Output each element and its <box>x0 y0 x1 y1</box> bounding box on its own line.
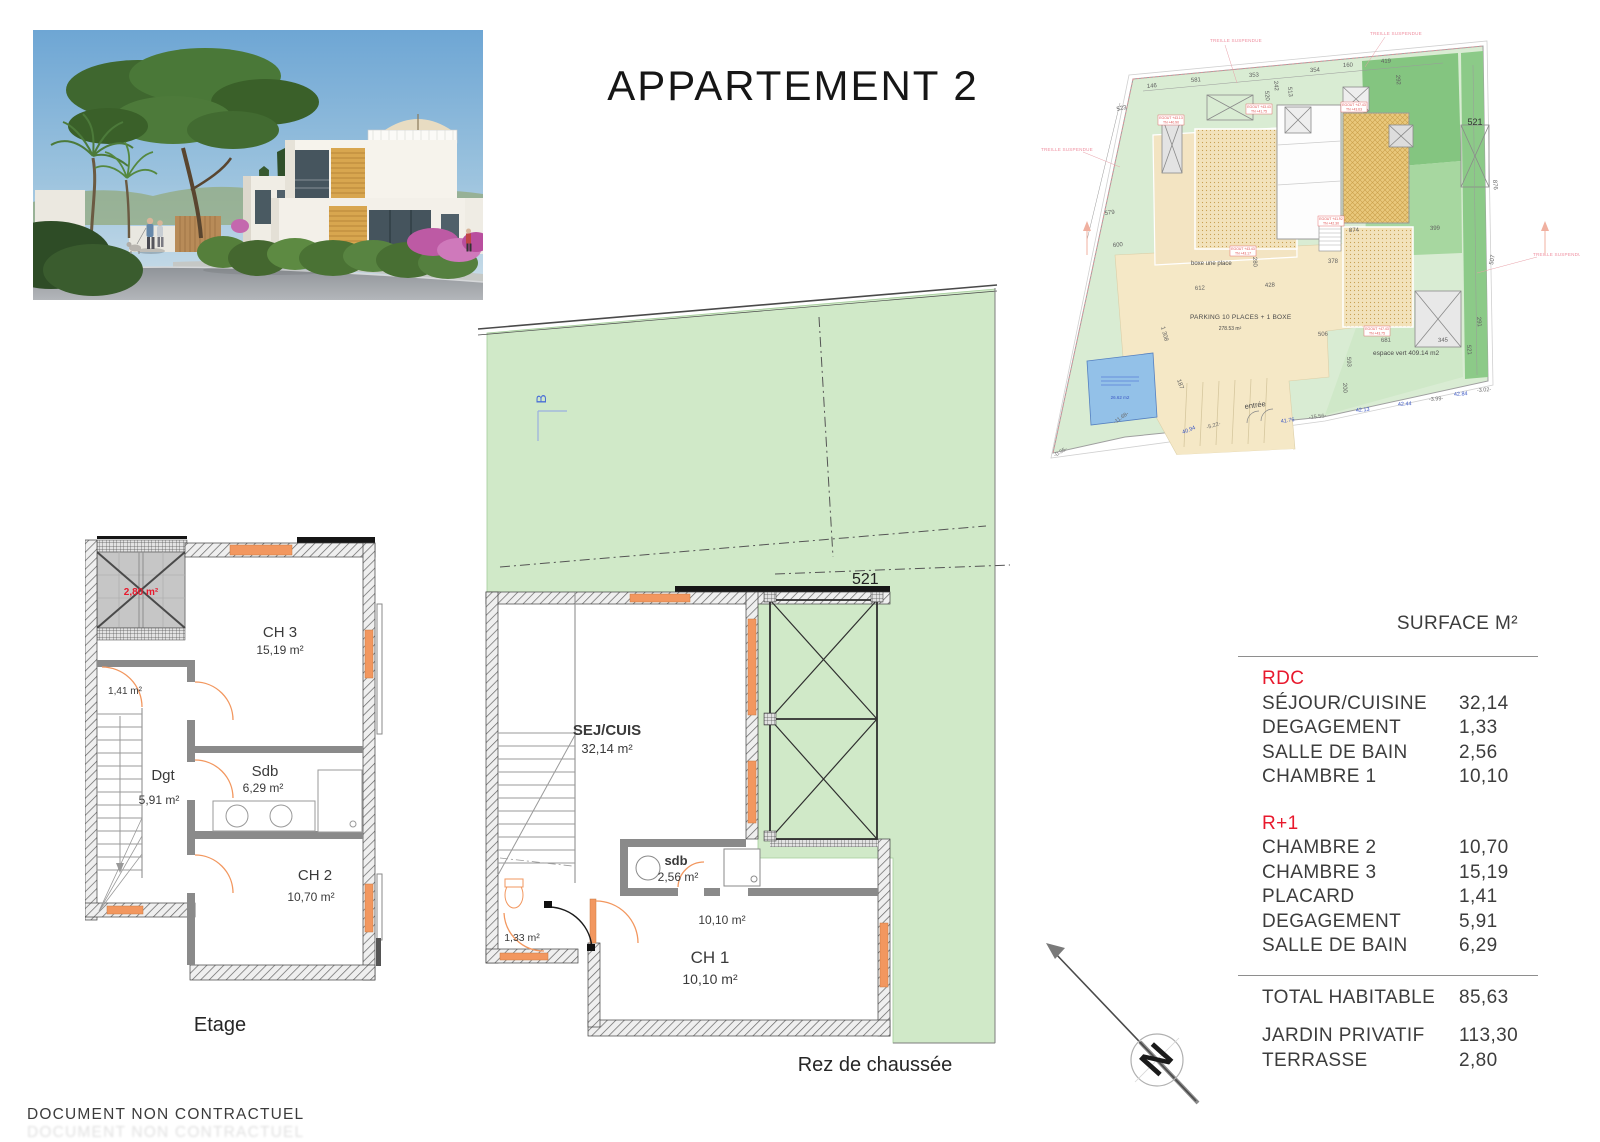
dim-label: 353 <box>1249 72 1260 79</box>
egout-note: TN +43.63 <box>1346 108 1362 112</box>
room-name: CH 1 <box>691 948 730 967</box>
egout-note: TN +40.90 <box>1163 121 1179 125</box>
road-measure: -15.56- <box>1309 413 1327 421</box>
row-label: CHAMBRE 2 <box>1262 837 1376 858</box>
treille-label: TREILLE SUSPENDUE <box>1370 31 1422 36</box>
dim-label: 200 <box>1341 383 1348 394</box>
bathroom-fixtures <box>505 849 760 908</box>
espace-vert-label: espace vert 409.14 m2 <box>1373 350 1440 357</box>
table-row: CHAMBRE 1 10,10 <box>1262 765 1538 790</box>
room-area: 5,91 m² <box>139 793 180 807</box>
row-value: 5,91 <box>1459 910 1498 935</box>
row-value: 1,33 <box>1459 716 1498 741</box>
table-row: TERRASSE 2,80 <box>1262 1049 1538 1074</box>
treille-label: TREILLE SUSPENDUE <box>1533 252 1580 257</box>
parking-label: PARKING 10 PLACES + 1 BOXE <box>1190 314 1292 321</box>
room-area: 2,56 m² <box>658 870 699 884</box>
dim-label: 378 <box>1328 259 1339 265</box>
room-area: 1,33 m² <box>504 932 540 944</box>
dim-label: 291 <box>1475 317 1482 328</box>
room-area: 6,29 m² <box>243 781 284 795</box>
egout-note: EGOUT +43.13 <box>1159 116 1183 120</box>
dim-label: 600 <box>1113 242 1124 249</box>
upper-shutter-rails <box>376 604 382 966</box>
compass-arrowhead <box>1046 943 1065 959</box>
dim-label: 581 <box>1191 77 1202 84</box>
egout-note: TN +43.75 <box>1369 332 1385 336</box>
dim-label: 428 <box>1265 282 1276 289</box>
row-value: 15,19 <box>1459 861 1509 886</box>
row-value: 32,14 <box>1459 692 1509 717</box>
upper-staircase <box>97 708 142 911</box>
table-row-total: TOTAL HABITABLE 85,63 <box>1262 986 1538 1011</box>
room-area: 32,14 m² <box>581 741 633 756</box>
dim-label: 874 <box>1349 228 1360 234</box>
row-label: TOTAL HABITABLE <box>1262 987 1435 1008</box>
row-label: PLACARD <box>1262 886 1355 907</box>
terrace-area-label: 2,80 m² <box>124 587 159 598</box>
egout-note: EGOUT +47.43 <box>1342 103 1366 107</box>
table-row: SALLE DE BAIN 6,29 <box>1262 934 1538 959</box>
row-value: 2,56 <box>1459 741 1498 766</box>
brochure-page: APPARTEMENT 2 <box>0 0 1600 1142</box>
dim-label: 292 <box>1394 75 1401 86</box>
dim-label: 520 <box>1263 91 1270 102</box>
dim-label: 521 <box>1465 345 1472 356</box>
dim-label: 280 <box>1251 257 1258 268</box>
dim-label: 146 <box>1147 83 1158 90</box>
dim-label: 507 <box>1489 254 1497 266</box>
parking-area-label: 278.53 m² <box>1219 326 1242 332</box>
egout-note: EGOUT +41.92 <box>1319 217 1343 221</box>
road-measure: -3.02- <box>1477 387 1492 394</box>
egout-note: EGOUT +43.43 <box>1247 105 1271 109</box>
row-label: JARDIN PRIVATIF <box>1262 1025 1425 1046</box>
table-row: DEGAGEMENT 1,33 <box>1262 716 1538 741</box>
egout-note: TN +41.75 <box>1251 110 1267 114</box>
room-area: 10,10 m² <box>698 913 745 927</box>
table-row: JARDIN PRIVATIF 113,30 <box>1262 1024 1538 1049</box>
section-title-r1: R+1 <box>1262 812 1538 837</box>
dim-label: 593 <box>1345 357 1352 368</box>
pool-area-label: 26.62 m2 <box>1111 395 1130 400</box>
row-label: CHAMBRE 3 <box>1262 862 1376 883</box>
disclaimer-footer: DOCUMENT NON CONTRACTUEL <box>27 1106 304 1124</box>
row-value: 10,10 <box>1459 765 1509 790</box>
treille-label: TREILLE SUSPENDUE <box>1041 147 1093 152</box>
dim-label: 242 <box>1272 81 1279 92</box>
entrance-door <box>544 901 595 951</box>
row-label: TERRASSE <box>1262 1050 1368 1071</box>
dim-label: 506 <box>1318 332 1329 338</box>
room-name: CH 2 <box>298 867 332 884</box>
north-compass: N <box>1040 933 1210 1118</box>
table-divider <box>1238 975 1538 976</box>
road-measure: 42.84 <box>1454 391 1468 398</box>
staircase <box>498 592 575 883</box>
room-name: SEJ/CUIS <box>573 722 641 739</box>
dim-label: 160 <box>1343 63 1354 69</box>
row-label: DEGAGEMENT <box>1262 717 1401 738</box>
room-name: Sdb <box>252 763 279 780</box>
egout-note: EGOUT +43.43 <box>1231 247 1255 251</box>
road-measure: 42.44 <box>1398 401 1412 408</box>
page-title: APPARTEMENT 2 <box>553 62 1033 110</box>
upper-floor-plan: 2,80 m² <box>85 518 395 1003</box>
room-area: 10,10 m² <box>682 971 738 987</box>
table-row: CHAMBRE 2 10,70 <box>1262 836 1538 861</box>
egout-note: TN +43.17 <box>1235 252 1251 256</box>
surface-table: SURFACE M² RDC SÉJOUR/CUISINE 32,14 DEGA… <box>1238 612 1538 1073</box>
row-value: 1,41 <box>1459 885 1498 910</box>
dim-label: 419 <box>1381 59 1392 65</box>
road-measure: 42.13 <box>1356 407 1370 414</box>
room-name: CH 3 <box>263 624 297 641</box>
room-area: 1,41 m² <box>108 686 143 697</box>
dim-label: 354 <box>1310 67 1321 74</box>
row-value: 6,29 <box>1459 934 1498 959</box>
site-plan: 26.62 m2 boxe une place PARKING 10 PLACE… <box>1025 25 1580 465</box>
room-area: 10,70 m² <box>287 890 334 904</box>
section-title-rdc: RDC <box>1262 667 1538 692</box>
dim-label: 612 <box>1195 285 1206 292</box>
table-divider <box>1238 656 1538 657</box>
dim-label: 876 <box>1491 180 1498 191</box>
dim-label: 399 <box>1430 226 1441 232</box>
dim-label: 681 <box>1381 338 1392 344</box>
road-measure: -3.99- <box>1429 396 1444 403</box>
egout-note: TN +42.30 <box>1323 222 1339 226</box>
garden-area <box>478 285 997 1043</box>
egout-note: EGOUT +47.43 <box>1365 327 1389 331</box>
upper-bathroom-fixtures <box>213 770 362 832</box>
row-label: SALLE DE BAIN <box>1262 742 1408 763</box>
treille-label: TREILLE SUSPENDUE <box>1210 38 1262 43</box>
row-label: SALLE DE BAIN <box>1262 935 1408 956</box>
row-value: 113,30 <box>1459 1024 1518 1049</box>
site-parcel-number: 521 <box>1467 117 1482 127</box>
dim-label: 513 <box>1286 87 1293 98</box>
room-name: Dgt <box>151 767 175 784</box>
row-value: 10,70 <box>1459 836 1509 861</box>
row-value: 2,80 <box>1459 1049 1498 1074</box>
upper-terrace: 2,80 m² <box>97 536 187 640</box>
upper-floor-caption: Etage <box>150 1014 290 1037</box>
project-photo <box>33 30 483 300</box>
section-mark-label: B <box>533 394 549 403</box>
ground-floor-caption: Rez de chaussée <box>755 1054 995 1077</box>
table-row: PLACARD 1,41 <box>1262 885 1538 910</box>
row-value: 85,63 <box>1459 986 1509 1011</box>
dim-label: 345 <box>1438 338 1449 344</box>
row-label: DEGAGEMENT <box>1262 911 1401 932</box>
room-area: 15,19 m² <box>256 643 303 657</box>
boxe-label: boxe une place <box>1191 261 1232 267</box>
row-label: CHAMBRE 1 <box>1262 766 1376 787</box>
ground-floor-plan: 521 B <box>470 283 1010 1048</box>
surface-table-header: SURFACE M² <box>1238 612 1538 636</box>
disclaimer-footer-echo: DOCUMENT NON CONTRACTUEL <box>27 1124 304 1142</box>
table-row: SÉJOUR/CUISINE 32,14 <box>1262 692 1538 717</box>
table-row: CHAMBRE 3 15,19 <box>1262 861 1538 886</box>
table-row: SALLE DE BAIN 2,56 <box>1262 741 1538 766</box>
room-name: sdb <box>664 853 687 868</box>
row-label: SÉJOUR/CUISINE <box>1262 693 1427 714</box>
table-row: DEGAGEMENT 5,91 <box>1262 910 1538 935</box>
parcel-number: 521 <box>852 571 879 588</box>
